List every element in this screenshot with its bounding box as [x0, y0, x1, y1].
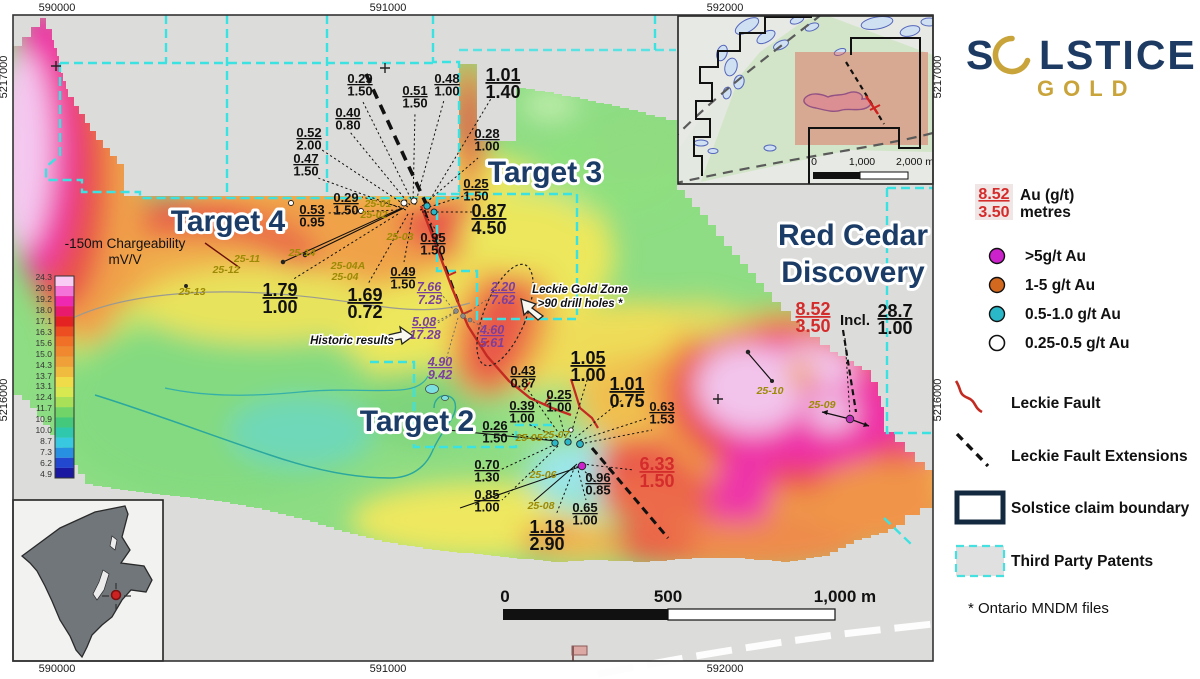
- svg-text:1,000: 1,000: [849, 156, 875, 168]
- svg-text:Au (g/t): Au (g/t): [1020, 187, 1074, 204]
- svg-text:1.50: 1.50: [293, 164, 318, 179]
- svg-text:6.2: 6.2: [40, 458, 52, 468]
- svg-text:9.42: 9.42: [428, 368, 452, 382]
- svg-text:0.95: 0.95: [299, 215, 324, 230]
- svg-text:19.2: 19.2: [35, 294, 52, 304]
- svg-text:4.50: 4.50: [471, 218, 506, 238]
- svg-text:15.0: 15.0: [35, 349, 52, 359]
- svg-text:25-05: 25-05: [515, 432, 543, 444]
- svg-text:14.3: 14.3: [35, 360, 52, 370]
- svg-text:0.85: 0.85: [585, 483, 610, 498]
- svg-text:25-06: 25-06: [529, 469, 557, 481]
- svg-text:5216000: 5216000: [0, 379, 10, 422]
- svg-text:1.30: 1.30: [474, 470, 499, 485]
- svg-text:4.9: 4.9: [40, 469, 52, 479]
- svg-text:25-14: 25-14: [288, 247, 316, 259]
- svg-text:Target 2: Target 2: [360, 405, 474, 438]
- svg-text:1.53: 1.53: [649, 412, 674, 427]
- svg-text:0.75: 0.75: [609, 391, 644, 411]
- svg-text:25-04: 25-04: [331, 271, 359, 283]
- svg-text:1.00: 1.00: [570, 365, 605, 385]
- svg-text:Discovery: Discovery: [781, 256, 925, 289]
- svg-text:>90 drill holes *: >90 drill holes *: [538, 298, 623, 310]
- svg-text:17.28: 17.28: [409, 328, 440, 342]
- svg-text:1.00: 1.00: [546, 400, 571, 415]
- svg-text:1.00: 1.00: [877, 318, 912, 338]
- svg-text:18.0: 18.0: [35, 305, 52, 315]
- svg-text:7.25: 7.25: [418, 293, 443, 307]
- svg-text:1.00: 1.00: [262, 297, 297, 317]
- svg-text:Leckie Gold Zone: Leckie Gold Zone: [532, 284, 628, 296]
- svg-text:0: 0: [500, 587, 509, 606]
- svg-text:Red Cedar: Red Cedar: [778, 219, 928, 252]
- svg-text:Target 3: Target 3: [488, 156, 602, 189]
- svg-text:1.50: 1.50: [333, 203, 358, 218]
- svg-text:12.4: 12.4: [35, 392, 52, 402]
- svg-text:590000: 590000: [39, 663, 76, 675]
- svg-text:10.9: 10.9: [35, 414, 52, 424]
- svg-text:8.7: 8.7: [40, 436, 52, 446]
- svg-text:592000: 592000: [707, 663, 744, 675]
- svg-text:0.25-0.5 g/t Au: 0.25-0.5 g/t Au: [1025, 335, 1130, 352]
- svg-text:4.60: 4.60: [479, 323, 504, 337]
- svg-text:2,000 m: 2,000 m: [896, 156, 934, 168]
- svg-text:7.66: 7.66: [417, 280, 442, 294]
- svg-text:5217000: 5217000: [0, 56, 10, 99]
- svg-text:Target 4: Target 4: [171, 205, 286, 238]
- svg-text:1.00: 1.00: [434, 84, 459, 99]
- svg-text:1.00: 1.00: [572, 513, 597, 528]
- svg-text:1.00: 1.00: [474, 500, 499, 515]
- svg-text:-150m Chargeability: -150m Chargeability: [65, 236, 186, 251]
- svg-text:1.50: 1.50: [402, 96, 427, 111]
- svg-text:500: 500: [654, 587, 682, 606]
- svg-text:7.3: 7.3: [40, 447, 52, 457]
- svg-text:1.00: 1.00: [509, 411, 534, 426]
- svg-text:3.50: 3.50: [795, 316, 830, 336]
- svg-text:0.80: 0.80: [335, 118, 360, 133]
- svg-text:metres: metres: [1020, 204, 1071, 221]
- svg-text:1.50: 1.50: [347, 84, 372, 99]
- svg-text:25-02: 25-02: [360, 209, 388, 221]
- svg-text:25-10: 25-10: [756, 385, 784, 397]
- svg-text:16.3: 16.3: [35, 327, 52, 337]
- svg-text:Leckie Fault Extensions: Leckie Fault Extensions: [1011, 448, 1188, 465]
- svg-text:4.90: 4.90: [427, 355, 452, 369]
- svg-text:25-07: 25-07: [542, 429, 571, 441]
- svg-text:LSTICE: LSTICE: [1039, 32, 1197, 78]
- svg-text:10.0: 10.0: [35, 425, 52, 435]
- svg-text:13.7: 13.7: [35, 371, 52, 381]
- svg-text:25-08: 25-08: [527, 500, 555, 512]
- svg-text:Leckie Fault: Leckie Fault: [1011, 395, 1101, 412]
- svg-text:1,000 m: 1,000 m: [814, 587, 876, 606]
- svg-text:25-13: 25-13: [178, 286, 206, 298]
- svg-text:2.20: 2.20: [490, 280, 515, 294]
- svg-text:5.08: 5.08: [412, 315, 436, 329]
- svg-text:* Ontario MNDM files: * Ontario MNDM files: [968, 600, 1109, 617]
- svg-text:25-09: 25-09: [808, 399, 836, 411]
- svg-text:1.50: 1.50: [639, 471, 674, 491]
- svg-text:591000: 591000: [370, 663, 407, 675]
- svg-text:17.1: 17.1: [35, 316, 52, 326]
- svg-text:3.50: 3.50: [978, 204, 1009, 221]
- svg-text:590000: 590000: [39, 2, 76, 14]
- svg-text:Incl.: Incl.: [840, 312, 870, 329]
- svg-text:1.50: 1.50: [390, 277, 415, 292]
- svg-text:8.52: 8.52: [978, 186, 1009, 203]
- svg-text:7.62: 7.62: [491, 293, 515, 307]
- svg-text:5.61: 5.61: [480, 336, 504, 350]
- svg-text:1-5 g/t Au: 1-5 g/t Au: [1025, 277, 1095, 294]
- svg-text:25-03: 25-03: [386, 231, 414, 243]
- svg-text:0.87: 0.87: [510, 376, 535, 391]
- svg-text:24.3: 24.3: [35, 272, 52, 282]
- svg-text:2.90: 2.90: [529, 534, 564, 554]
- svg-text:20.9: 20.9: [35, 283, 52, 293]
- svg-text:Third Party Patents: Third Party Patents: [1011, 553, 1153, 570]
- svg-text:1.50: 1.50: [482, 431, 507, 446]
- svg-text:mV/V: mV/V: [108, 252, 141, 267]
- svg-text:Historic results: Historic results: [310, 335, 394, 347]
- svg-text:1.00: 1.00: [474, 139, 499, 154]
- svg-text:>5g/t Au: >5g/t Au: [1025, 248, 1086, 265]
- svg-text:0.72: 0.72: [347, 302, 382, 322]
- svg-text:592000: 592000: [707, 2, 744, 14]
- svg-text:GOLD: GOLD: [1037, 76, 1137, 101]
- svg-text:1.40: 1.40: [485, 82, 520, 102]
- svg-text:11.7: 11.7: [36, 403, 52, 413]
- svg-text:13.1: 13.1: [35, 381, 52, 391]
- svg-text:Solstice claim boundary: Solstice claim boundary: [1011, 500, 1190, 517]
- svg-text:0: 0: [811, 156, 817, 168]
- svg-text:1.50: 1.50: [420, 243, 445, 258]
- svg-text:25-12: 25-12: [212, 264, 240, 276]
- svg-text:591000: 591000: [370, 2, 407, 14]
- svg-text:15.6: 15.6: [35, 338, 52, 348]
- svg-text:S: S: [966, 32, 993, 78]
- svg-text:0.5-1.0 g/t Au: 0.5-1.0 g/t Au: [1025, 306, 1121, 323]
